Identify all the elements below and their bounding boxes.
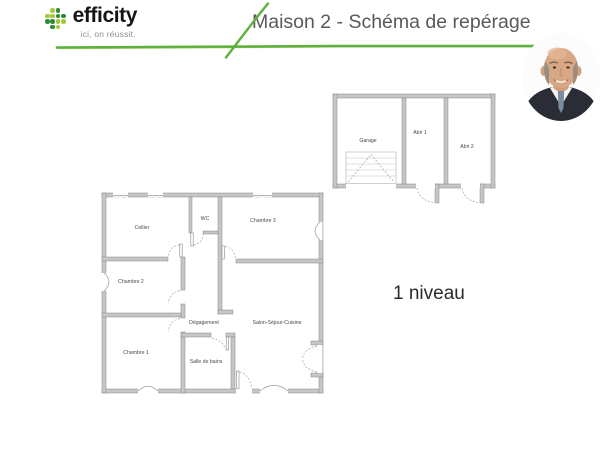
house-floorplan: Cellier WC Chambre 3 Chambre 2 Dégagemen… xyxy=(102,193,324,394)
house-room-labels: Cellier WC Chambre 3 Chambre 2 Dégagemen… xyxy=(118,216,301,365)
green-diagonal-stroke xyxy=(226,4,268,58)
chambre2-door-arc xyxy=(168,291,180,304)
room-label-chambre3: Chambre 3 xyxy=(250,218,276,224)
room-label-degagement: Dégagement xyxy=(189,320,219,326)
slide: efficity ici, on réussit. Maison 2 - Sch… xyxy=(0,0,600,450)
room-label-abri1: Abri 1 xyxy=(413,130,427,136)
french-door-arc-bottom xyxy=(303,359,318,372)
room-label-sdb: Salle de bains xyxy=(190,359,223,365)
french-door-arc-top xyxy=(303,346,318,359)
room-label-cellier: Cellier xyxy=(135,225,150,231)
room-label-chambre2: Chambre 2 xyxy=(118,279,144,285)
room-label-salon: Salon-Séjour-Cuisine xyxy=(252,320,301,326)
abri1-door-arc xyxy=(417,188,433,203)
wc-door-arc xyxy=(194,235,204,246)
garage-door-icon xyxy=(346,152,396,184)
abri2-door-arc xyxy=(462,188,478,203)
room-label-chambre1: Chambre 1 xyxy=(123,350,149,356)
house-doors xyxy=(168,233,323,394)
entry-door-arc xyxy=(240,372,252,388)
room-label-wc: WC xyxy=(201,216,210,222)
room-label-garage: Garage xyxy=(359,138,376,144)
bathroom-door-arc xyxy=(212,338,226,350)
green-underline xyxy=(57,4,545,58)
agent-photo xyxy=(522,33,600,122)
slide-graphics: Garage Abri 1 Abri 2 xyxy=(0,0,600,450)
annex-floorplan: Garage Abri 1 Abri 2 xyxy=(333,94,495,203)
cellier-door-arc xyxy=(169,245,180,256)
chambre3-door-arc xyxy=(225,247,236,259)
annex-openings xyxy=(346,152,480,203)
chambre1-door-arc xyxy=(168,319,180,332)
room-label-abri2: Abri 2 xyxy=(460,144,474,150)
